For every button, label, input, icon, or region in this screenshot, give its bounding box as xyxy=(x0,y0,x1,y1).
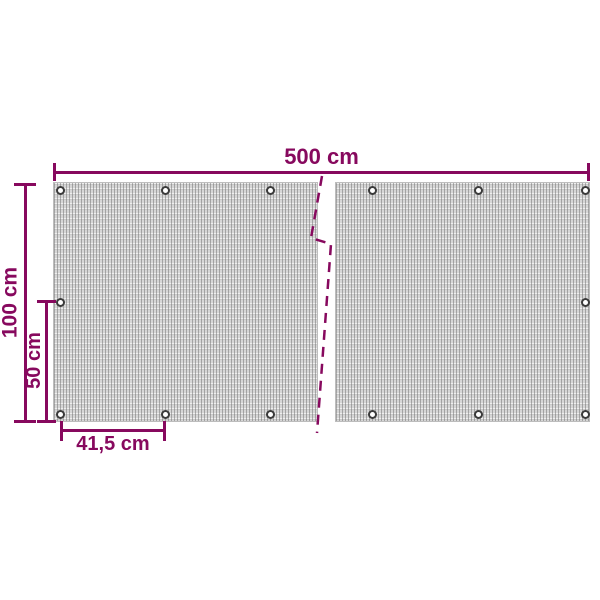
grommet-spacing-label: 41,5 cm xyxy=(40,434,186,455)
grommet-spacing-dimension-line xyxy=(60,429,166,432)
height-dimension-label: 100 cm xyxy=(0,183,21,423)
half-height-dimension-label: 50 cm xyxy=(24,299,45,422)
width-dimension-label: 500 cm xyxy=(53,146,590,168)
product-dimension-diagram: 500 cm 100 cm 50 cm 41,5 cm xyxy=(0,0,600,600)
width-dimension-line xyxy=(53,171,590,174)
panel-break-line xyxy=(0,0,600,600)
half-height-dimension-line xyxy=(45,300,48,423)
